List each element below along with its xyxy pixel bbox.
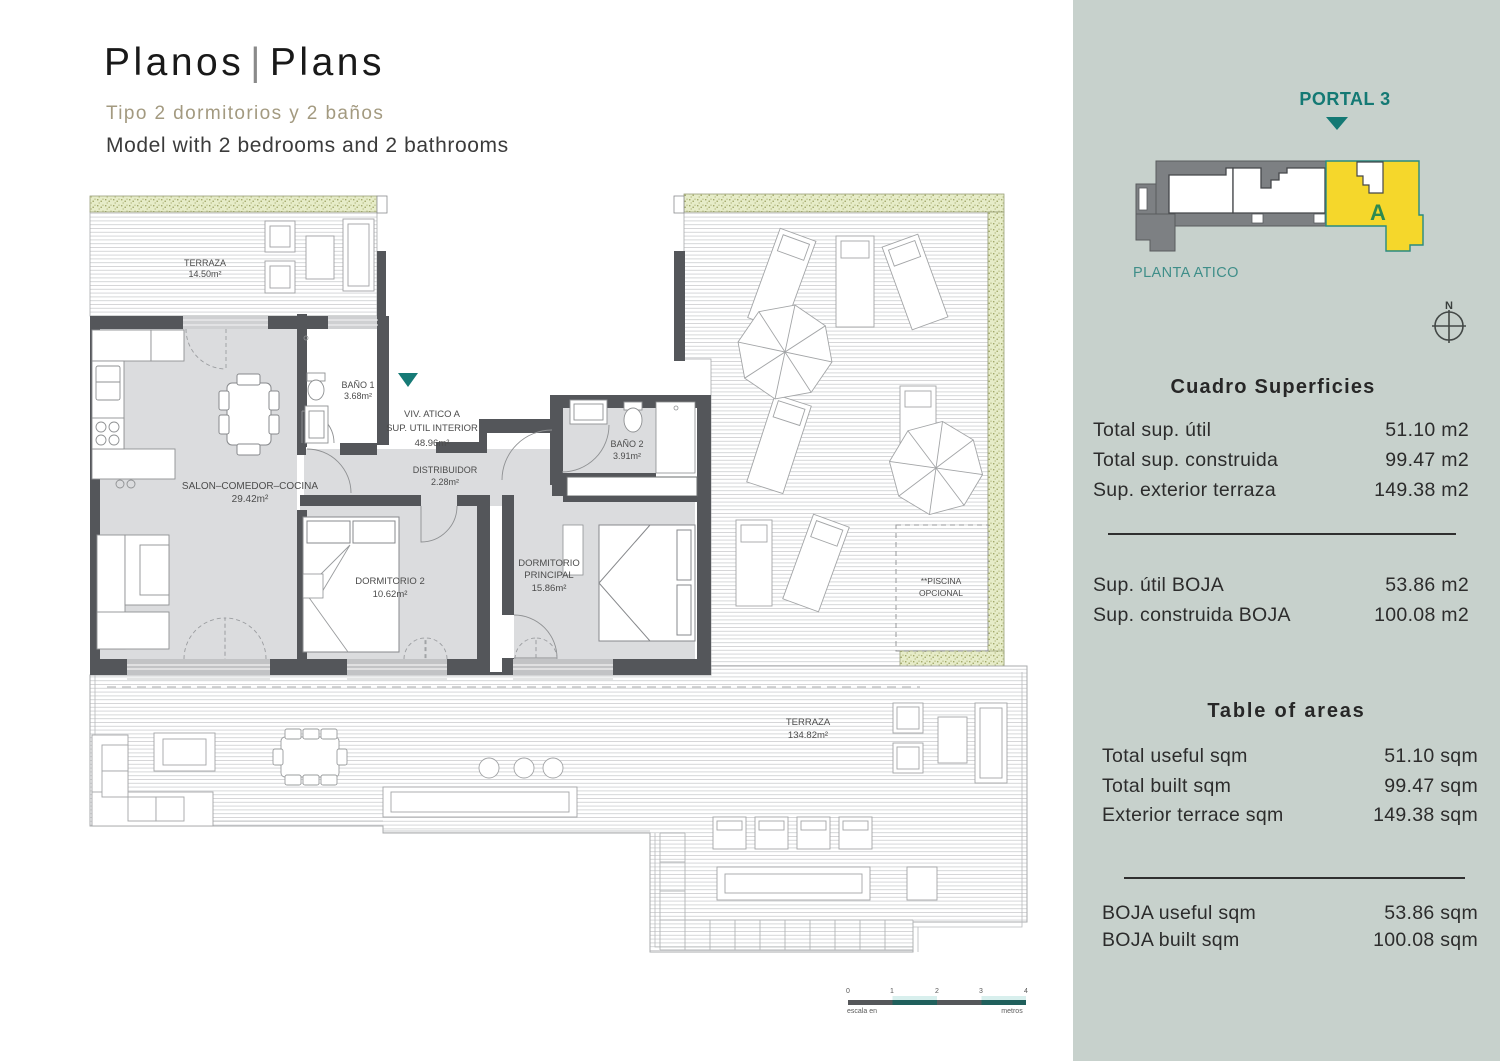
svg-text:VIV. ATICO A: VIV. ATICO A [404,409,461,420]
svg-text:A: A [1370,200,1386,225]
svg-text:TERRAZA: TERRAZA [184,258,226,268]
svg-text:0: 0 [846,988,850,995]
svg-text:DISTRIBUIDOR: DISTRIBUIDOR [413,465,478,475]
svg-text:DORMITORIO: DORMITORIO [518,558,580,569]
svg-text:DORMITORIO 2: DORMITORIO 2 [355,576,425,587]
svg-text:10.62m²: 10.62m² [373,589,408,600]
svg-text:48.96m²: 48.96m² [415,438,450,449]
svg-text:2: 2 [935,988,939,995]
svg-text:14.50m²: 14.50m² [188,269,221,279]
svg-text:OPCIONAL: OPCIONAL [919,588,963,598]
svg-text:1: 1 [890,988,894,995]
svg-text:134.82m²: 134.82m² [788,730,828,741]
svg-text:BAÑO 1: BAÑO 1 [341,380,374,390]
svg-text:BAÑO 2: BAÑO 2 [610,439,643,449]
svg-text:3: 3 [979,988,983,995]
svg-text:3.91m²: 3.91m² [613,451,641,461]
svg-text:2.28m²: 2.28m² [431,477,459,487]
svg-text:TERRAZA: TERRAZA [786,717,831,728]
svg-text:15.86m²: 15.86m² [532,583,567,594]
svg-text:SALON–COMEDOR–COCINA: SALON–COMEDOR–COCINA [182,481,318,492]
svg-text:**PISCINA: **PISCINA [921,576,962,586]
svg-text:metros: metros [1001,1008,1023,1015]
svg-text:PRINCIPAL: PRINCIPAL [524,570,573,581]
svg-text:escala en: escala en [847,1008,877,1015]
svg-text:3.68m²: 3.68m² [344,391,372,401]
svg-text:29.42m²: 29.42m² [232,494,269,505]
svg-text:SUP. UTIL INTERIOR: SUP. UTIL INTERIOR [386,423,478,434]
svg-text:4: 4 [1024,988,1028,995]
